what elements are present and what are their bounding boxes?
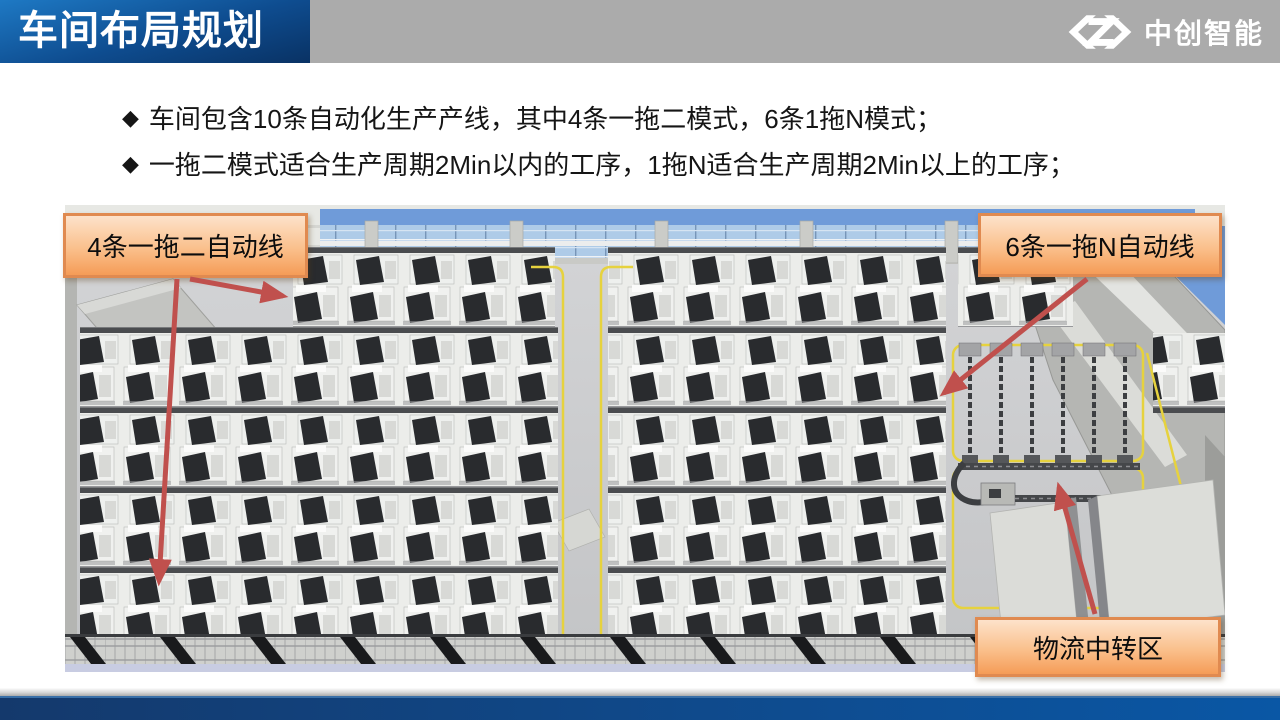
company-logo: 中创智能 [1064, 0, 1264, 63]
header: 车间布局规划 中创智能 [0, 0, 1280, 63]
bullet-text-2: 一拖二模式适合生产周期2Min以内的工序，1拖N适合生产周期2Min以上的工序； [149, 145, 1075, 182]
bullet-item-1: ◆ 车间包含10条自动化生产产线，其中4条一拖二模式，6条1拖N模式； [122, 99, 942, 136]
diamond-bullet-icon: ◆ [122, 107, 139, 129]
title-banner: 车间布局规划 [0, 0, 310, 63]
footer-divider [0, 688, 1280, 696]
company-logo-icon [1064, 9, 1136, 55]
callout-6-lines-1-to-N: 6条一拖N自动线 [978, 213, 1222, 277]
company-logo-text: 中创智能 [1144, 12, 1264, 52]
slide: 车间布局规划 中创智能 ◆ 车间包含10条自动化生产产线，其中4条一拖二模式，6… [0, 0, 1280, 720]
bullet-item-2: ◆ 一拖二模式适合生产周期2Min以内的工序，1拖N适合生产周期2Min以上的工… [122, 145, 1075, 182]
bullet-text-1: 车间包含10条自动化生产产线，其中4条一拖二模式，6条1拖N模式； [149, 99, 942, 136]
footer-bar [0, 696, 1280, 720]
page-title: 车间布局规划 [18, 0, 264, 63]
callout-4-lines-1-to-2: 4条一拖二自动线 [63, 213, 308, 278]
callout-logistics-transfer-zone: 物流中转区 [975, 617, 1221, 677]
header-gray-strip: 中创智能 [310, 0, 1280, 63]
diamond-bullet-icon: ◆ [122, 153, 139, 175]
